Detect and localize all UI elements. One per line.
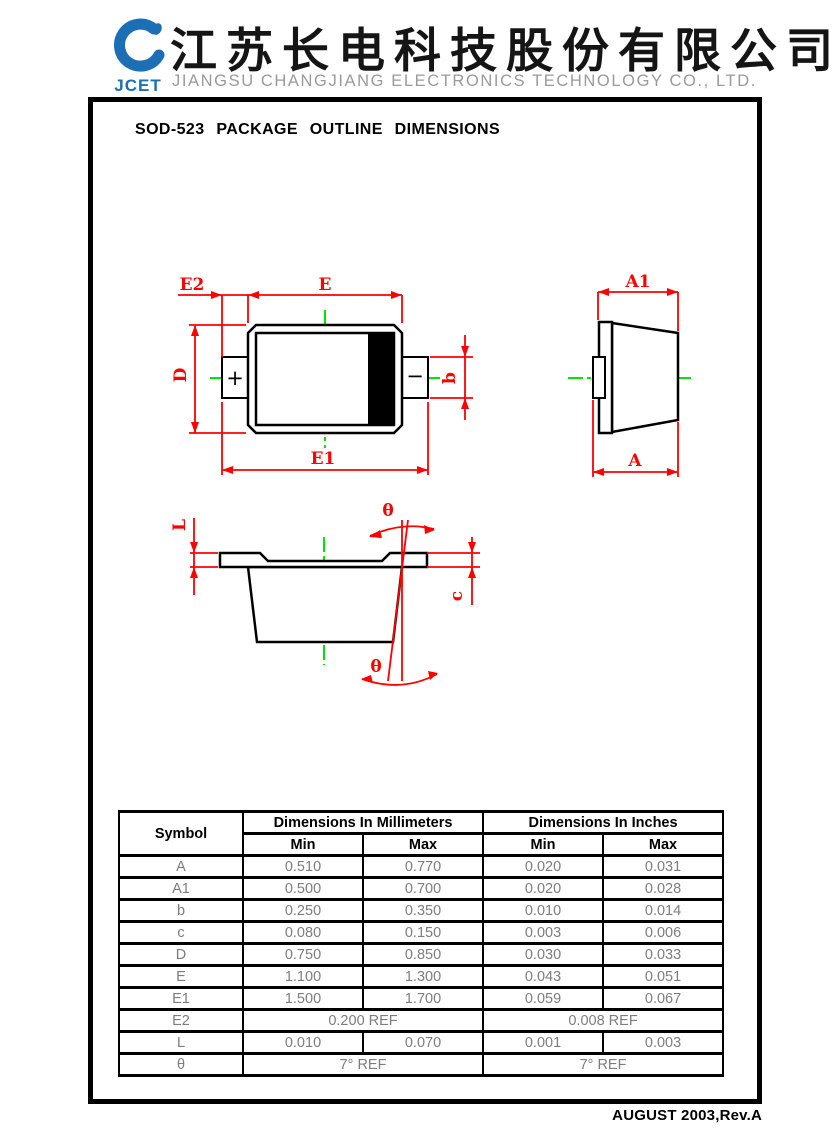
jcet-logo-icon [110, 18, 168, 78]
inch-max-header: Max [603, 834, 723, 856]
dimensions-table: Symbol Dimensions In Millimeters Dimensi… [118, 810, 724, 1077]
leadframe-profile [220, 553, 427, 567]
table-row: A10.5000.7000.0200.028 [119, 878, 723, 900]
mm-group-header: Dimensions In Millimeters [243, 812, 483, 834]
side-view-drawing: L c θ θ [165, 495, 505, 715]
table-cell-mm_min: 0.750 [243, 944, 363, 966]
datasheet-page: { "header": { "logo_text": "JCET", "comp… [0, 0, 834, 1144]
table-cell-in_span: 7° REF [483, 1054, 723, 1076]
table-cell-mm_min: 0.510 [243, 856, 363, 878]
dim-label-c: c [447, 591, 467, 601]
dimension-table-body: A0.5100.7700.0200.031A10.5000.7000.0200.… [119, 856, 723, 1076]
table-cell-in_max: 0.028 [603, 878, 723, 900]
cathode-minus-mark: − [406, 364, 424, 388]
dim-label-b: b [440, 372, 460, 384]
table-cell-mm_min: 0.500 [243, 878, 363, 900]
dim-label-L: L [170, 519, 190, 531]
lead-edge [593, 357, 605, 398]
end-view-drawing: A1 A [555, 262, 705, 482]
table-cell-mm_max: 0.850 [363, 944, 483, 966]
table-row: c0.0800.1500.0030.006 [119, 922, 723, 944]
table-cell-mm_max: 0.150 [363, 922, 483, 944]
page-title: SOD-523 PACKAGE OUTLINE DIMENSIONS [135, 121, 500, 139]
table-cell-in_min: 0.020 [483, 856, 603, 878]
table-cell-mm_min: 0.250 [243, 900, 363, 922]
table-cell-in_min: 0.010 [483, 900, 603, 922]
table-cell-in_max: 0.003 [603, 1032, 723, 1054]
table-cell-mm_min: 0.010 [243, 1032, 363, 1054]
dim-label-E1: E1 [311, 449, 336, 469]
table-cell-symbol: A [119, 856, 243, 878]
table-cell-mm_max: 0.070 [363, 1032, 483, 1054]
table-cell-symbol: L [119, 1032, 243, 1054]
company-name-chinese: 江苏长电科技股份有限公司 [170, 12, 834, 81]
table-cell-mm_span: 7° REF [243, 1054, 483, 1076]
table-cell-in_min: 0.043 [483, 966, 603, 988]
symbol-column-header: Symbol [119, 812, 243, 856]
table-cell-mm_max: 0.350 [363, 900, 483, 922]
dim-label-E2: E2 [180, 275, 205, 295]
table-cell-in_span: 0.008 REF [483, 1010, 723, 1032]
table-group-header-row: Symbol Dimensions In Millimeters Dimensi… [119, 812, 723, 834]
table-cell-symbol: A1 [119, 878, 243, 900]
mm-min-header: Min [243, 834, 363, 856]
table-cell-in_max: 0.031 [603, 856, 723, 878]
table-cell-in_max: 0.014 [603, 900, 723, 922]
table-cell-in_min: 0.059 [483, 988, 603, 1010]
table-cell-mm_max: 1.300 [363, 966, 483, 988]
dim-label-A1: A1 [624, 272, 650, 292]
table-cell-in_min: 0.030 [483, 944, 603, 966]
company-name-english: JIANGSU CHANGJIANG ELECTRONICS TECHNOLOG… [172, 72, 757, 91]
package-taper-profile [612, 323, 678, 432]
table-row: A0.5100.7700.0200.031 [119, 856, 723, 878]
table-cell-symbol: c [119, 922, 243, 944]
table-cell-symbol: E1 [119, 988, 243, 1010]
table-cell-in_max: 0.051 [603, 966, 723, 988]
table-cell-mm_max: 0.700 [363, 878, 483, 900]
mm-max-header: Max [363, 834, 483, 856]
cathode-band [368, 333, 394, 425]
table-row: b0.2500.3500.0100.014 [119, 900, 723, 922]
table-cell-mm_max: 0.770 [363, 856, 483, 878]
table-cell-in_min: 0.001 [483, 1032, 603, 1054]
table-cell-in_max: 0.067 [603, 988, 723, 1010]
table-cell-mm_max: 1.700 [363, 988, 483, 1010]
inch-min-header: Min [483, 834, 603, 856]
dim-label-A: A [627, 451, 642, 471]
dim-label-theta-bottom: θ [370, 657, 381, 677]
dim-label-E: E [319, 275, 332, 295]
table-cell-in_max: 0.033 [603, 944, 723, 966]
table-cell-mm_min: 1.100 [243, 966, 363, 988]
table-row: D0.7500.8500.0300.033 [119, 944, 723, 966]
table-cell-mm_span: 0.200 REF [243, 1010, 483, 1032]
table-cell-symbol: D [119, 944, 243, 966]
table-row: E11.5001.7000.0590.067 [119, 988, 723, 1010]
table-row: E1.1001.3000.0430.051 [119, 966, 723, 988]
table-cell-in_max: 0.006 [603, 922, 723, 944]
table-cell-mm_min: 0.080 [243, 922, 363, 944]
logo-jcet-label: JCET [106, 76, 170, 96]
table-row: L0.0100.0700.0010.003 [119, 1032, 723, 1054]
top-view-drawing: + − E2 E D b E1 [165, 262, 505, 482]
anode-plus-mark: + [226, 366, 244, 390]
dim-label-D: D [171, 367, 191, 382]
table-cell-in_min: 0.003 [483, 922, 603, 944]
table-cell-mm_min: 1.500 [243, 988, 363, 1010]
table-cell-symbol: b [119, 900, 243, 922]
table-cell-in_min: 0.020 [483, 878, 603, 900]
table-row: θ7° REF7° REF [119, 1054, 723, 1076]
molded-body-profile [248, 567, 402, 642]
table-row: E20.200 REF0.008 REF [119, 1010, 723, 1032]
revision-note: AUGUST 2003,Rev.A [88, 1107, 762, 1124]
table-cell-symbol: E2 [119, 1010, 243, 1032]
dim-label-theta-top: θ [382, 501, 393, 521]
table-cell-symbol: E [119, 966, 243, 988]
inch-group-header: Dimensions In Inches [483, 812, 723, 834]
table-cell-symbol: θ [119, 1054, 243, 1076]
